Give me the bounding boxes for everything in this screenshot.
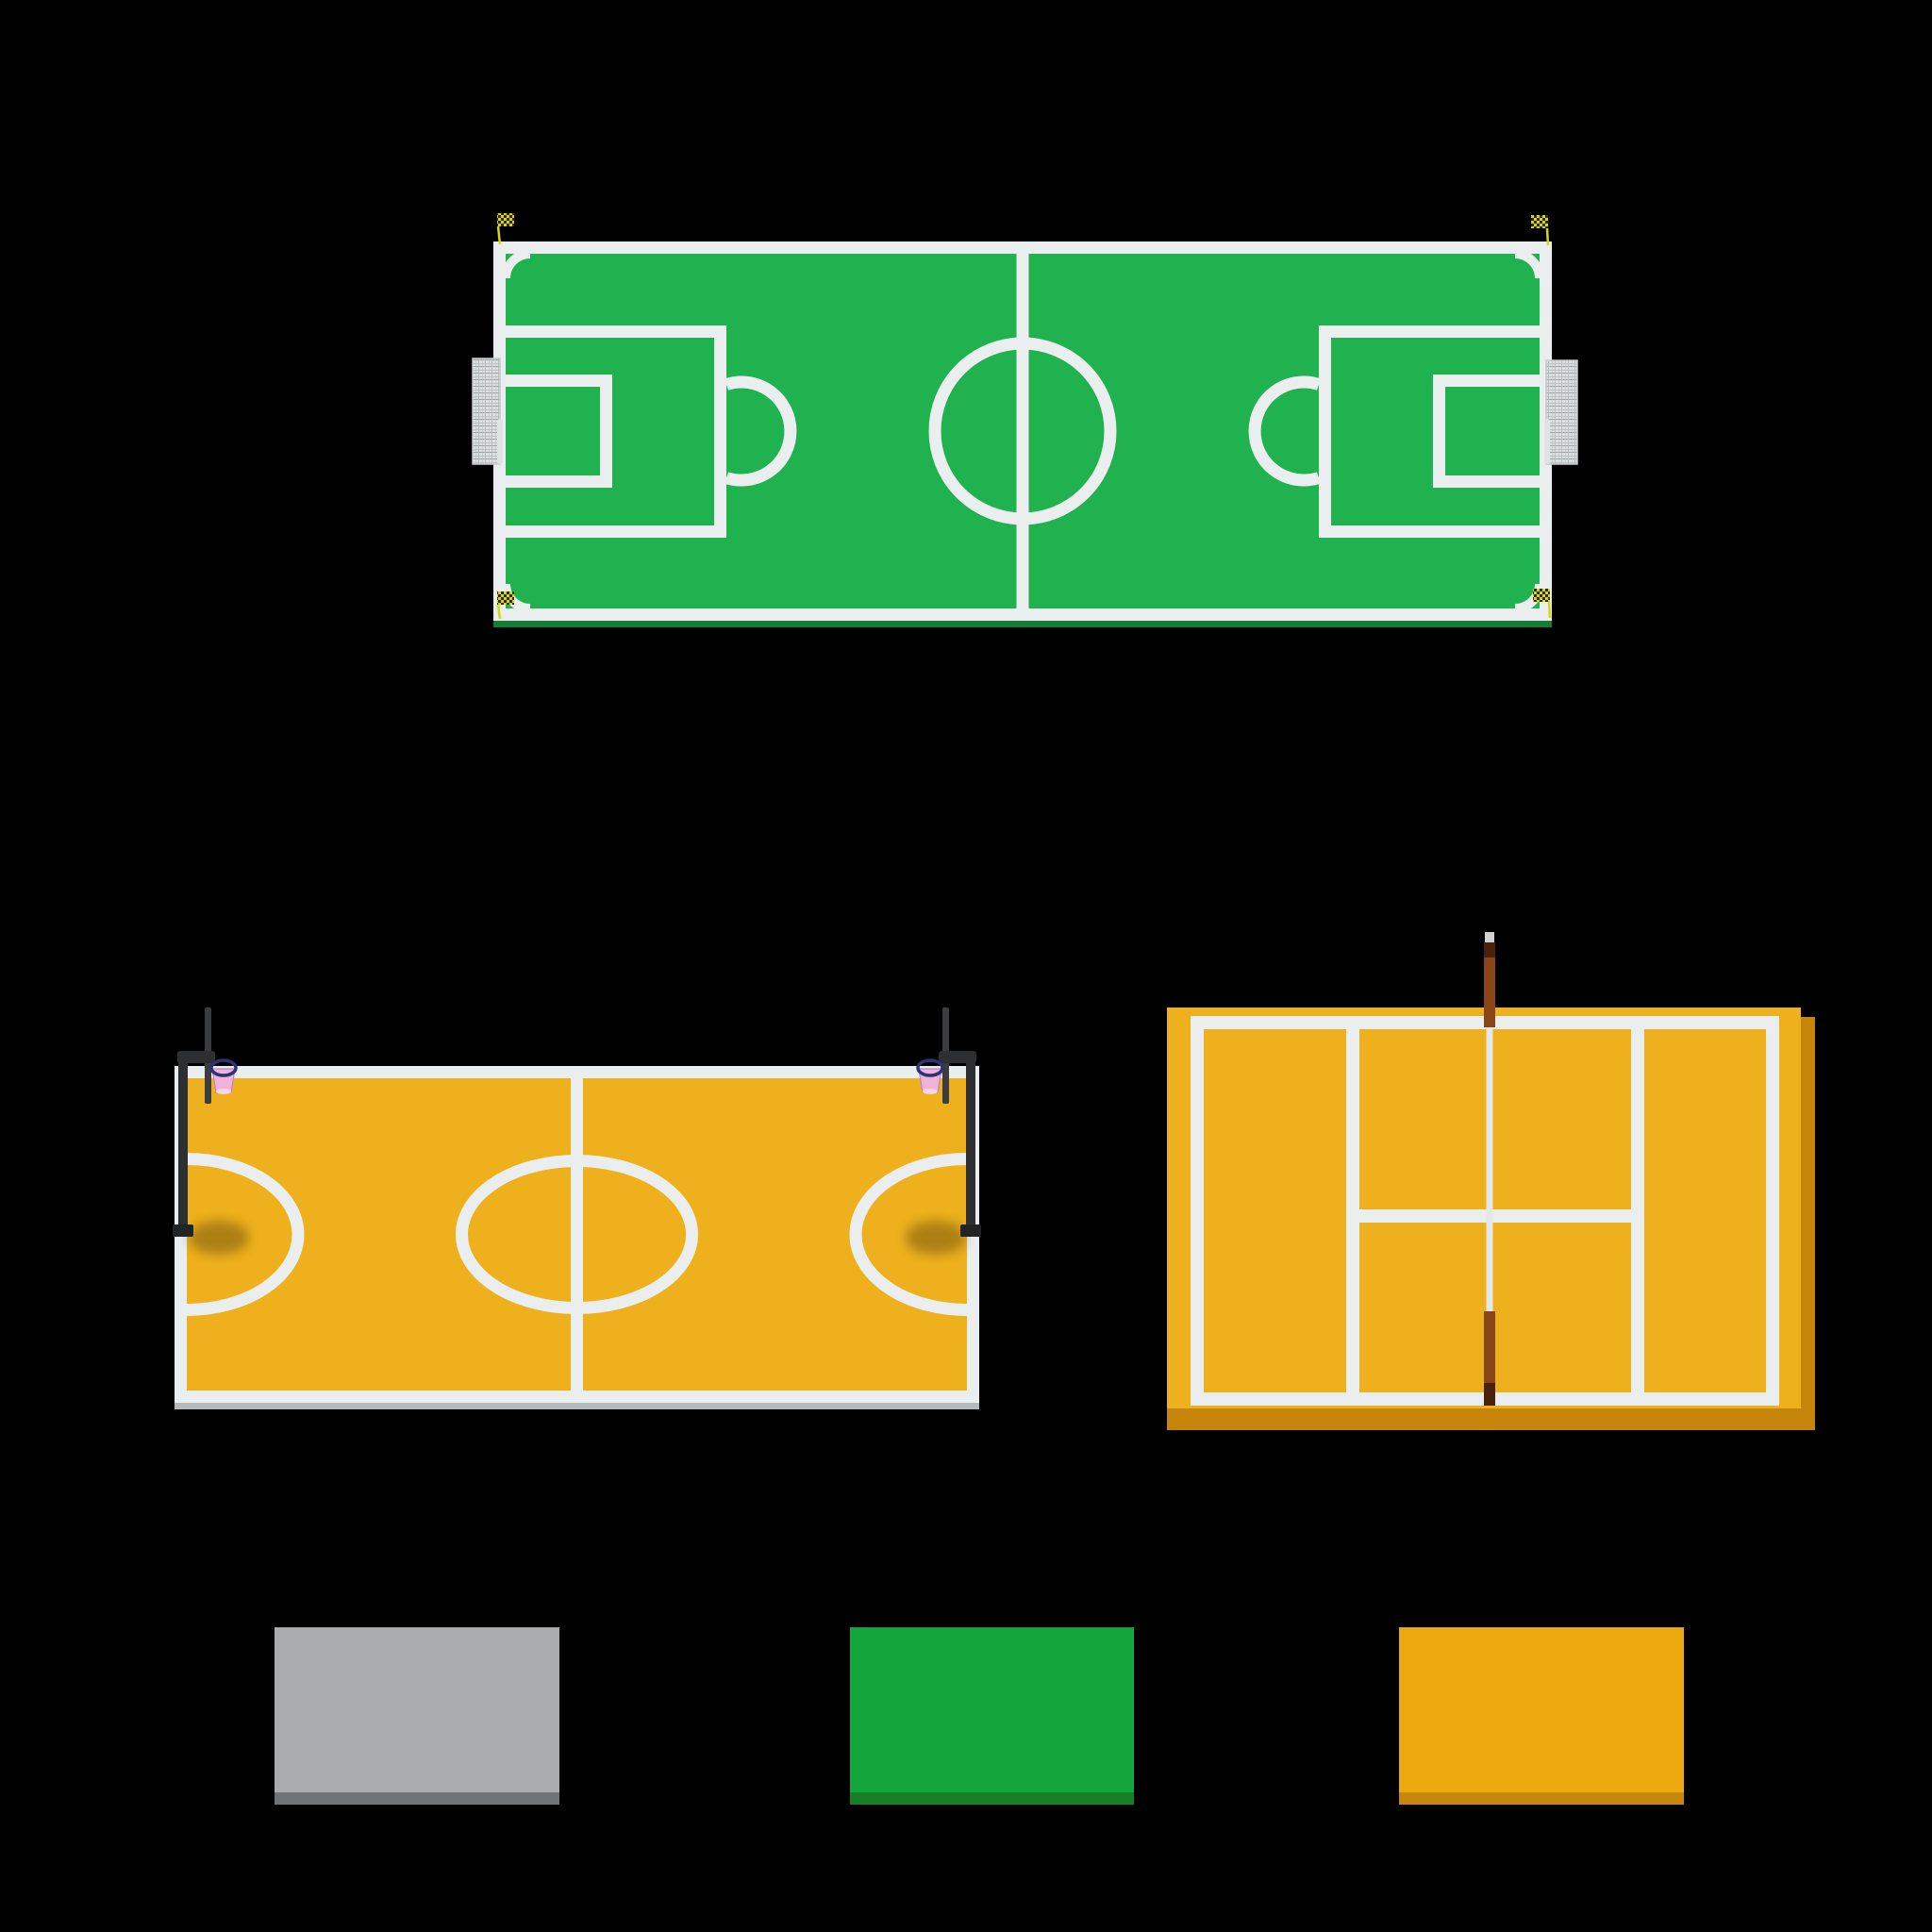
tennis-net-post-bottom-dark (1484, 1383, 1495, 1406)
basketball-net-right-bottom (923, 1089, 938, 1094)
soccer-goal-right (1546, 360, 1577, 464)
slab-orange-front (1399, 1792, 1684, 1805)
tennis-front-face (1167, 1408, 1815, 1430)
corner-flag-top-right (1531, 215, 1548, 228)
scene-svg (0, 0, 1932, 1932)
slab-orange-top (1399, 1627, 1684, 1792)
tennis-net-post-top-dark (1484, 942, 1495, 958)
slab-gray-front (275, 1792, 559, 1805)
slab-green-top (850, 1627, 1134, 1792)
basketball-net-left-bottom (216, 1089, 231, 1094)
basketball-pole-left (178, 1057, 188, 1231)
corner-flag-pole-top-right (1547, 228, 1548, 245)
basketball-pole-right (966, 1057, 975, 1231)
corner-flag-pole-bottom-right (1549, 602, 1550, 618)
soccer-goal-left (473, 358, 500, 464)
slab-gray-top (275, 1627, 559, 1792)
basketball-pole-shadow-left (189, 1221, 249, 1255)
tennis-net-post-top-cap (1485, 932, 1494, 943)
tennis-side-face-right (1799, 1017, 1815, 1423)
basketball-pole-foot-right (960, 1224, 981, 1237)
basketball-slab-bottom-edge (175, 1403, 979, 1409)
slab-green-front (850, 1792, 1134, 1805)
basketball-pole-shadow-right (906, 1221, 966, 1255)
soccer-goal-right-bar (1544, 419, 1550, 464)
corner-flag-bottom-left (497, 591, 514, 605)
scene-objects (173, 213, 1815, 1805)
render-canvas (0, 0, 1932, 1932)
corner-flag-bottom-right (1533, 589, 1550, 602)
soccer-goal-left-bar (497, 419, 503, 464)
basketball-pole-foot-left (173, 1224, 193, 1237)
corner-flag-top-left (497, 213, 514, 226)
